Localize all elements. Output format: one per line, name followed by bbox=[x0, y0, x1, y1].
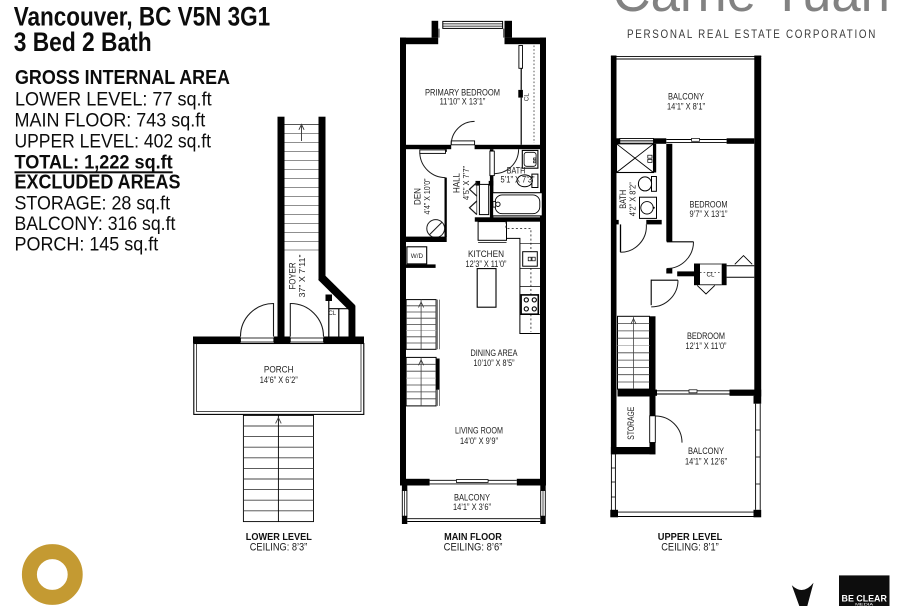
svg-text:11’10” X 13’1”: 11’10” X 13’1” bbox=[440, 96, 486, 106]
svg-text:14’1” X 12’6”: 14’1” X 12’6” bbox=[685, 456, 727, 466]
svg-text:DEN: DEN bbox=[413, 188, 423, 205]
svg-text:12’1” X 11’0”: 12’1” X 11’0” bbox=[686, 341, 727, 351]
svg-text:FOYER: FOYER bbox=[288, 263, 298, 290]
svg-text:TOTAL: 1,222 sq.ft: TOTAL: 1,222 sq.ft bbox=[15, 152, 174, 173]
svg-text:CEILING: 8’6”: CEILING: 8’6” bbox=[444, 542, 503, 554]
svg-text:CL: CL bbox=[524, 93, 531, 102]
svg-text:4’2” X 8’2”: 4’2” X 8’2” bbox=[629, 182, 638, 216]
svg-text:37” X 7’11”: 37” X 7’11” bbox=[298, 254, 307, 297]
svg-text:PERSONAL REAL ESTATE CORPORATI: PERSONAL REAL ESTATE CORPORATION bbox=[627, 28, 877, 41]
svg-text:4’5” X 7’7”: 4’5” X 7’7” bbox=[462, 166, 471, 200]
svg-text:14’0” X 9’9”: 14’0” X 9’9” bbox=[460, 436, 498, 446]
svg-text:GROSS INTERNAL AREA: GROSS INTERNAL AREA bbox=[15, 67, 230, 89]
svg-text:MAIN FLOOR: 743 sq.ft: MAIN FLOOR: 743 sq.ft bbox=[15, 111, 206, 132]
svg-text:14’1” X 3’6”: 14’1” X 3’6” bbox=[453, 502, 491, 512]
svg-text:10’10” X 8’5”: 10’10” X 8’5” bbox=[474, 358, 515, 368]
svg-text:LOWER LEVEL: 77 sq.ft: LOWER LEVEL: 77 sq.ft bbox=[15, 89, 212, 110]
svg-text:BALCONY: BALCONY bbox=[454, 492, 490, 502]
svg-text:BALCONY: 316 sq.ft: BALCONY: 316 sq.ft bbox=[15, 214, 176, 235]
svg-text:BALCONY: BALCONY bbox=[688, 446, 724, 456]
svg-text:CEILING: 8’1”: CEILING: 8’1” bbox=[661, 542, 719, 554]
svg-text:W/D: W/D bbox=[411, 253, 424, 260]
svg-text:14’6” X 6’2”: 14’6” X 6’2” bbox=[260, 375, 298, 385]
svg-text:4’4” X 10’0”: 4’4” X 10’0” bbox=[423, 178, 432, 214]
svg-text:CL: CL bbox=[707, 271, 715, 278]
svg-text:MEDIA: MEDIA bbox=[855, 602, 874, 606]
svg-text:STORAGE: STORAGE bbox=[626, 407, 636, 440]
svg-text:PORCH: PORCH bbox=[264, 364, 294, 375]
svg-text:3 Bed 2 Bath: 3 Bed 2 Bath bbox=[14, 27, 152, 57]
svg-text:12’3” X 11’0”: 12’3” X 11’0” bbox=[466, 259, 507, 269]
svg-text:STORAGE: 28 sq.ft: STORAGE: 28 sq.ft bbox=[15, 194, 171, 215]
svg-text:BATH: BATH bbox=[618, 190, 628, 209]
svg-text:5’1” X 7’3”: 5’1” X 7’3” bbox=[501, 174, 535, 184]
svg-text:Carrie Yuan: Carrie Yuan bbox=[613, 0, 891, 23]
svg-text:HALL: HALL bbox=[452, 173, 462, 193]
svg-text:UPPER LEVEL: 402 sq.ft: UPPER LEVEL: 402 sq.ft bbox=[15, 132, 212, 153]
svg-text:14’1” X 8’1”: 14’1” X 8’1” bbox=[667, 101, 705, 111]
svg-text:9’7” X 13’1”: 9’7” X 13’1” bbox=[690, 209, 728, 219]
svg-text:EXCLUDED AREAS: EXCLUDED AREAS bbox=[15, 172, 181, 194]
svg-text:CEILING: 8’3”: CEILING: 8’3” bbox=[250, 542, 308, 554]
svg-text:CL: CL bbox=[328, 311, 336, 317]
svg-text:PORCH: 145 sq.ft: PORCH: 145 sq.ft bbox=[15, 234, 159, 255]
